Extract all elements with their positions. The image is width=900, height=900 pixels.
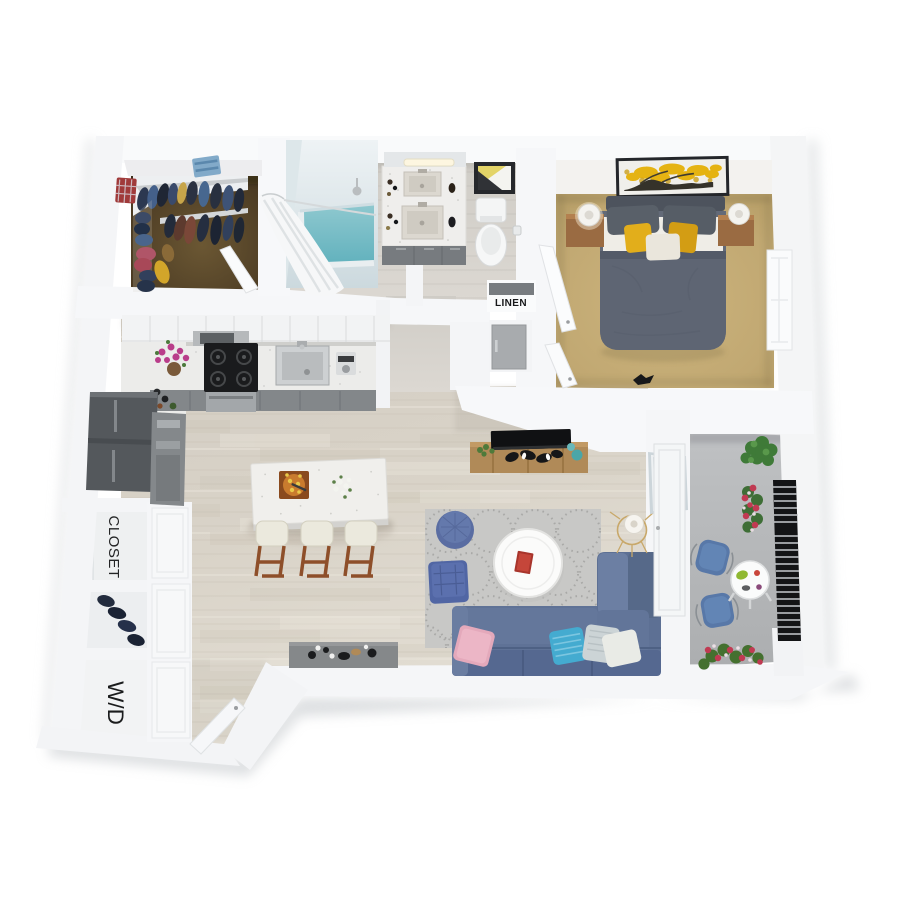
svg-text:CLOSET: CLOSET — [105, 515, 122, 578]
svg-text:LINEN: LINEN — [495, 298, 527, 309]
svg-text:W/D: W/D — [103, 681, 128, 725]
